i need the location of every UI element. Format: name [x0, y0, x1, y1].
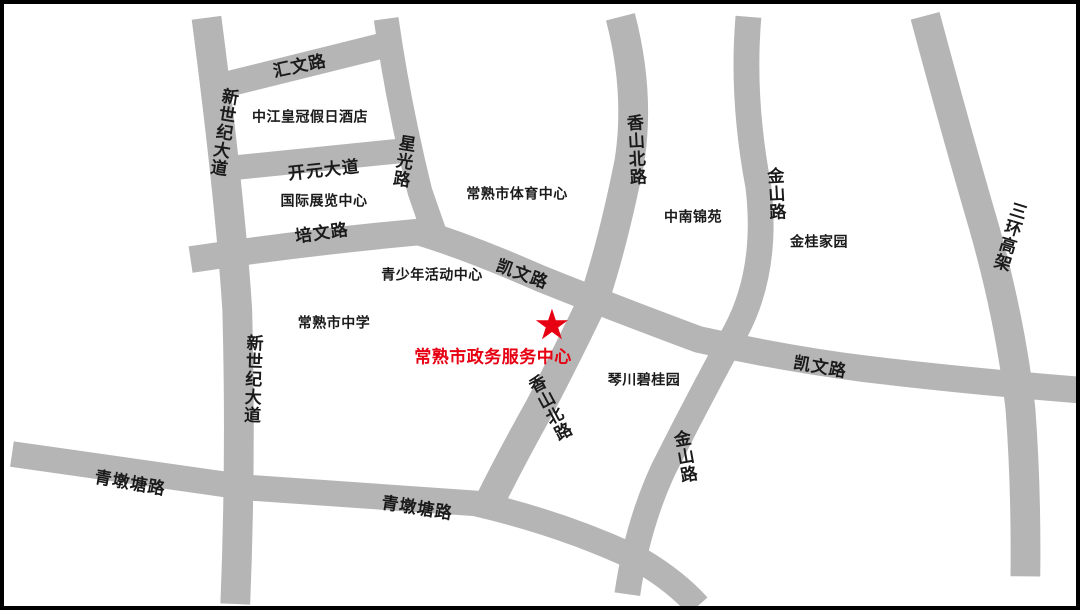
poi-label-sports-center: 常熟市体育中心	[466, 187, 568, 202]
poi-label-exhibition-center: 国际展览中心	[281, 194, 368, 209]
destination-star-icon: ★	[533, 304, 571, 346]
road-peiwen-kaiwen	[191, 232, 1076, 390]
poi-label-crowne-plaza-hotel: 中江皇冠假日酒店	[252, 110, 368, 125]
destination-label: 常熟市政务服务中心	[414, 343, 572, 368]
road-sanhuan-elevated	[925, 16, 1025, 577]
poi-label-zhongnan-jinyuan: 中南锦苑	[664, 210, 722, 225]
road-label-xinshiji-south: 新世纪大道	[240, 334, 262, 425]
poi-label-jingui-jiayuan: 金桂家园	[790, 235, 848, 250]
poi-label-changshu-high-school: 常熟市中学	[298, 316, 371, 331]
poi-label-qinchuan-biguiyuan: 琴川碧桂园	[608, 373, 681, 388]
road-xingguang	[386, 19, 438, 243]
road-label-jinshan-north: 金山路	[763, 167, 784, 222]
poi-label-youth-activity-center: 青少年活动中心	[381, 268, 483, 283]
road-label-xiangshan-north-top: 香山北路	[623, 114, 645, 187]
map-canvas: 汇文路 新世纪大道 星光路 开元大道 培文路 凯文路 香山北路 金山路 三环高架…	[0, 0, 1080, 610]
